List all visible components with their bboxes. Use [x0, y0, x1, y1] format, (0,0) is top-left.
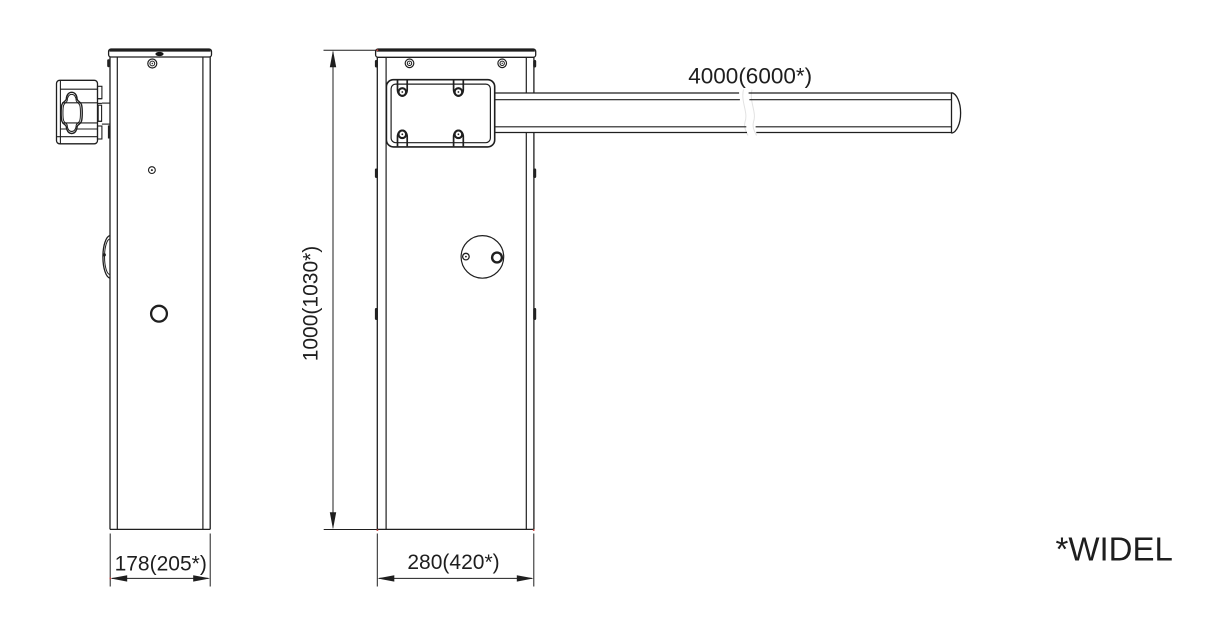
svg-text:*WIDEL: *WIDEL — [1056, 531, 1173, 568]
svg-text:280(420*): 280(420*) — [407, 551, 499, 574]
svg-text:4000(6000*): 4000(6000*) — [688, 64, 812, 89]
svg-text:1000(1030*): 1000(1030*) — [300, 246, 323, 362]
svg-text:178(205*): 178(205*) — [115, 552, 207, 575]
